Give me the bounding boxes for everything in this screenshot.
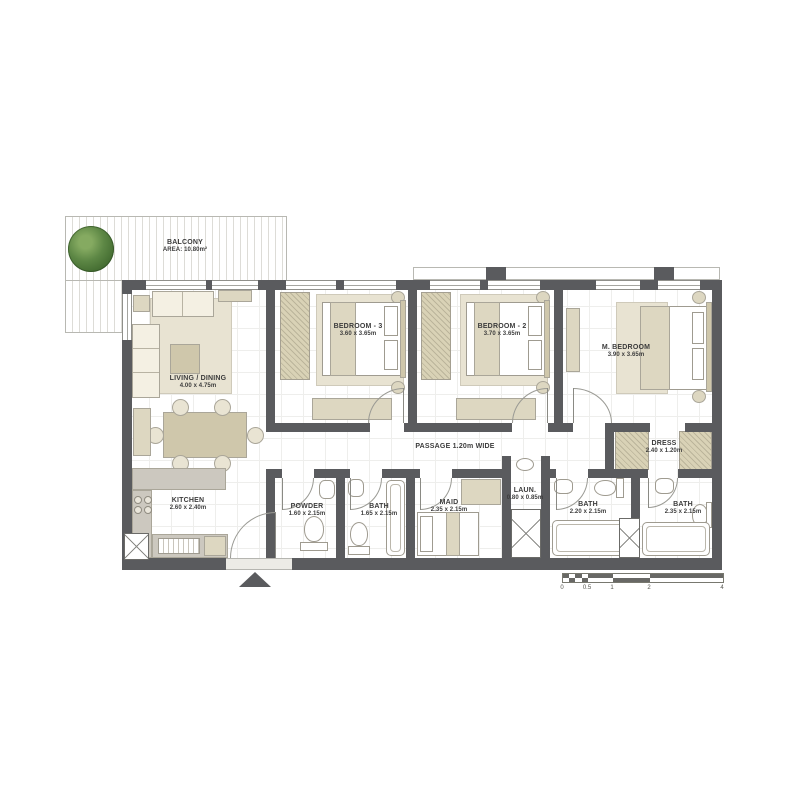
label-laundry: LAUN. 0.80 x 0.85m xyxy=(499,486,551,503)
bath2-bathtub xyxy=(552,520,629,556)
window-balcony-door xyxy=(122,294,132,340)
room-name: DRESS xyxy=(634,439,694,448)
window-mbedroom xyxy=(658,280,700,290)
mbedroom-pillow xyxy=(692,312,704,344)
mbedroom-lamp-icon xyxy=(692,291,706,304)
wall-bed2-mbed xyxy=(554,280,563,423)
window-bedroom2 xyxy=(430,280,480,290)
door-leaf-bedroom2 xyxy=(547,388,548,423)
room-dims: 3.60 x 3.65m xyxy=(300,331,416,339)
room-dims: 1.60 x 2.15m xyxy=(275,511,339,519)
mbedroom-pillow xyxy=(692,348,704,380)
window-bedroom3 xyxy=(344,280,396,290)
scale-segment xyxy=(650,574,723,578)
room-name: LAUN. xyxy=(499,486,551,495)
window-bedroom2 xyxy=(488,280,540,290)
window-mbedroom xyxy=(596,280,640,290)
room-dims: 0.80 x 0.85m xyxy=(499,495,551,503)
label-bedroom3: BEDROOM - 3 3.60 x 3.65m xyxy=(300,322,416,339)
bath1-toilet xyxy=(350,522,368,546)
kitchen-counter-peninsula xyxy=(132,468,226,490)
room-dims: 2.40 x 1.20m xyxy=(634,448,694,456)
kitchen-sink xyxy=(158,538,200,554)
wall-passage-north xyxy=(548,423,573,432)
wall-dress-west xyxy=(605,423,614,478)
label-powder: POWDER 1.60 x 2.15m xyxy=(275,502,339,519)
wall-maid-laundry xyxy=(502,456,511,558)
wall-mbed-south xyxy=(612,423,650,432)
window-bedroom3 xyxy=(286,280,336,290)
door-leaf-bedroom3 xyxy=(403,388,404,423)
maid-pillow xyxy=(420,516,433,552)
window-living xyxy=(146,280,206,290)
room-dims: 3.70 x 3.65m xyxy=(444,331,560,339)
scale-bar xyxy=(562,573,724,583)
room-dims: 2.20 x 2.15m xyxy=(548,509,628,517)
room-name: M. BEDROOM xyxy=(570,343,682,352)
fridge xyxy=(204,536,226,556)
door-leaf-entry xyxy=(275,512,276,558)
room-dims: AREA: 10.80m² xyxy=(135,247,235,255)
scale-segment xyxy=(569,578,575,582)
balcony-deck-left-arm xyxy=(65,280,123,333)
laundry-basin xyxy=(516,458,534,471)
label-dress: DRESS 2.40 x 1.20m xyxy=(634,439,694,456)
scale-segment xyxy=(575,574,582,578)
laundry-shaft xyxy=(511,509,541,558)
label-living: LIVING / DINING 4.00 x 4.75m xyxy=(140,374,256,391)
room-name: BEDROOM - 3 xyxy=(300,322,416,331)
label-kitchen: KITCHEN 2.60 x 2.40m xyxy=(138,496,238,513)
dining-chair xyxy=(247,427,264,444)
entrance-arrow-icon xyxy=(239,572,271,587)
dining-table xyxy=(163,412,247,458)
wall-service-north xyxy=(678,469,712,478)
label-maid: MAID 2.35 x 2.15m xyxy=(404,498,494,515)
room-name: BATH xyxy=(548,500,628,509)
bath3-shaft xyxy=(619,518,640,558)
room-dims: 2.60 x 2.40m xyxy=(138,505,238,513)
bedroom3-blanket xyxy=(330,302,356,376)
room-dims: 3.90 x 3.65m xyxy=(570,352,682,360)
dining-chair xyxy=(214,399,231,416)
room-name: PASSAGE 1.20m WIDE xyxy=(395,442,515,451)
wall-living-bed3 xyxy=(266,280,275,423)
kitchen-shaft xyxy=(124,533,149,560)
wall-passage-north xyxy=(266,423,370,432)
sofa-top xyxy=(152,291,214,317)
balcony-plant-icon xyxy=(68,226,114,272)
scale-segment xyxy=(588,574,613,578)
bath1-toilet-tank xyxy=(348,546,370,555)
door-leaf-mbedroom xyxy=(573,388,574,423)
room-name: BEDROOM - 2 xyxy=(444,322,560,331)
maid-blanket xyxy=(446,512,460,556)
wall-service-north xyxy=(550,469,556,478)
wall-passage-north xyxy=(404,423,512,432)
bath3-bathtub xyxy=(642,522,710,556)
parapet-pier xyxy=(486,267,506,280)
room-dims: 2.35 x 2.15m xyxy=(643,509,723,517)
entry-threshold xyxy=(226,558,292,570)
side-table xyxy=(133,295,150,312)
label-balcony: BALCONY AREA: 10.80m² xyxy=(135,238,235,255)
scale-tick: 4 xyxy=(714,585,730,591)
room-name: KITCHEN xyxy=(138,496,238,505)
bedroom2-headboard xyxy=(544,300,550,378)
label-bath2: BATH 2.20 x 2.15m xyxy=(548,500,628,517)
room-dims: 1.65 x 2.15m xyxy=(345,511,413,519)
parapet-pier xyxy=(654,267,674,280)
room-dims: 2.35 x 2.15m xyxy=(404,507,494,515)
label-mbedroom: M. BEDROOM 3.90 x 3.65m xyxy=(570,343,682,360)
wall-right xyxy=(712,280,722,570)
bedroom3-headboard xyxy=(400,300,406,378)
room-name: BATH xyxy=(643,500,723,509)
scale-segment xyxy=(582,578,588,582)
label-bath1: BATH 1.65 x 2.15m xyxy=(345,502,413,519)
mbedroom-lamp-icon xyxy=(692,390,706,403)
wall-bed3-bed2 xyxy=(408,280,417,423)
coffee-table xyxy=(170,344,200,374)
wall-service-north xyxy=(452,469,502,478)
room-name: POWDER xyxy=(275,502,339,511)
window-living xyxy=(212,280,258,290)
room-name: LIVING / DINING xyxy=(140,374,256,383)
label-bedroom2: BEDROOM - 2 3.70 x 3.65m xyxy=(444,322,560,339)
scale-segment xyxy=(613,578,650,582)
room-name: BALCONY xyxy=(135,238,235,247)
powder-toilet-tank xyxy=(300,542,328,551)
room-name: BATH xyxy=(345,502,413,511)
bath2-toilet xyxy=(594,480,616,496)
dining-chair xyxy=(172,399,189,416)
label-passage: PASSAGE 1.20m WIDE xyxy=(395,442,515,451)
label-bath3: BATH 2.35 x 2.15m xyxy=(643,500,723,517)
powder-sink xyxy=(319,480,335,499)
floor-plan-canvas: BALCONY AREA: 10.80m² LIVING / DINING 4.… xyxy=(0,0,800,800)
bench xyxy=(133,408,151,456)
powder-toilet xyxy=(304,516,324,542)
room-dims: 4.00 x 4.75m xyxy=(140,383,256,391)
scale-tick: 0 xyxy=(554,585,570,591)
wall-mbed-south xyxy=(685,423,712,432)
scale-tick: 2 xyxy=(641,585,657,591)
bath2-toilet-tank xyxy=(616,478,624,498)
bedroom2-blanket xyxy=(474,302,500,376)
wall-bottom-right xyxy=(292,558,722,570)
bedroom2-pillow xyxy=(528,340,542,370)
scale-tick: 1 xyxy=(604,585,620,591)
media-unit xyxy=(218,290,252,302)
room-name: MAID xyxy=(404,498,494,507)
bedroom3-pillow xyxy=(384,340,398,370)
mbedroom-tv-unit xyxy=(566,308,580,372)
scale-tick: 0.5 xyxy=(579,585,595,591)
